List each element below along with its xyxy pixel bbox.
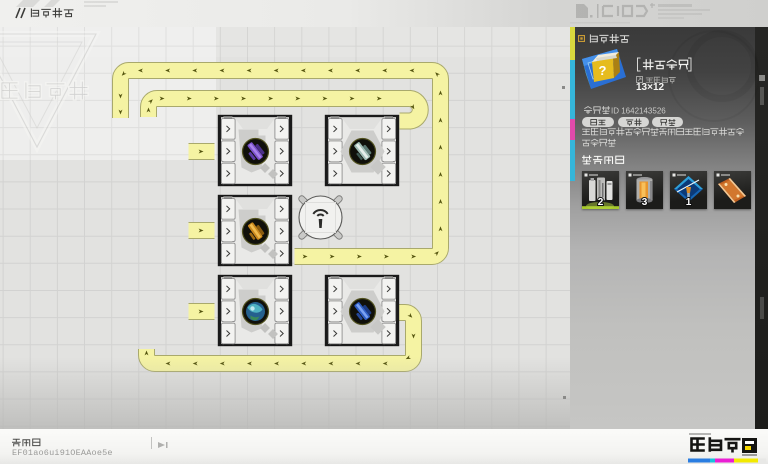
svg-text:ID 1642143526: ID 1642143526 [611, 107, 666, 116]
svg-text:3: 3 [642, 197, 648, 208]
svg-text:1: 1 [686, 197, 692, 208]
svg-text:2: 2 [598, 197, 604, 208]
svg-text:?: ? [599, 63, 607, 78]
